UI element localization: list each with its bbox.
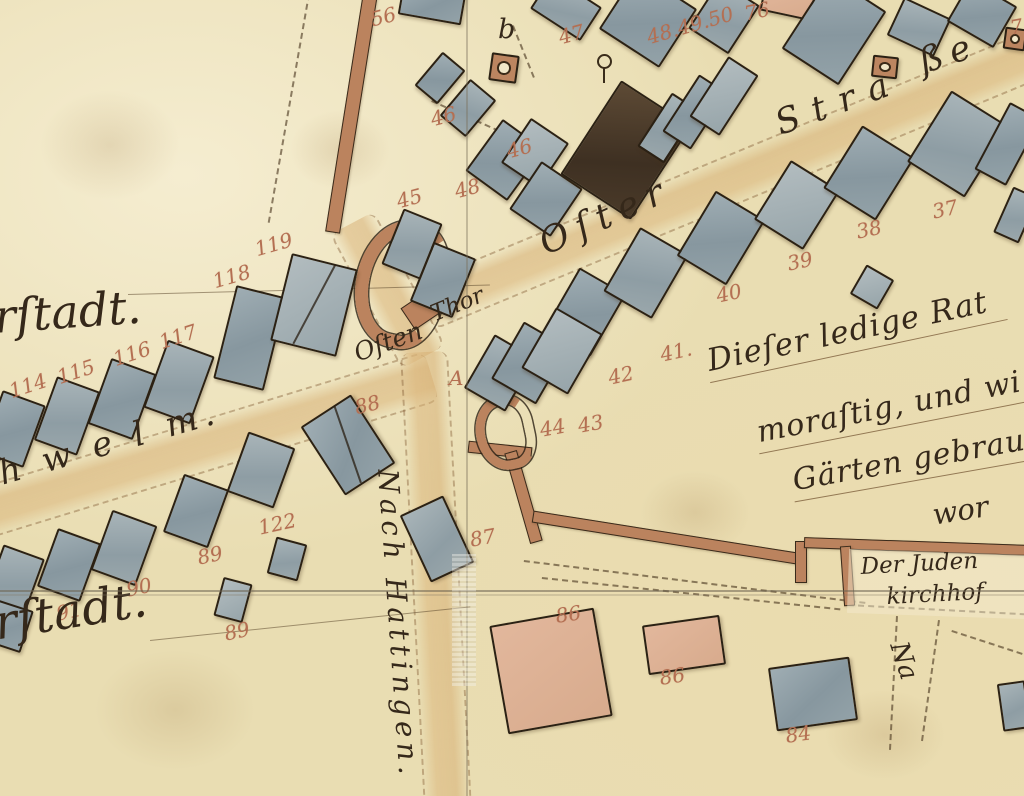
plot-number-40-12: 40 xyxy=(714,279,744,308)
plot-number-119-25: 119 xyxy=(252,227,295,261)
building-29 xyxy=(993,186,1024,243)
plot-number-41-13: 41. xyxy=(658,336,694,366)
building-well-b xyxy=(488,52,520,84)
building-89a xyxy=(163,474,229,549)
plot-number-89-27: 89 xyxy=(195,541,225,570)
paper-stain-2 xyxy=(95,650,255,770)
building-119 xyxy=(270,253,358,357)
plot-number-114-20: 114 xyxy=(6,368,50,403)
building-divider xyxy=(292,265,336,345)
plot-number-89-30: 89 xyxy=(222,617,252,646)
dashed-boundary-9 xyxy=(951,630,1024,658)
plot-number-86-31: 86 xyxy=(554,600,583,627)
plot-number-87-18: 87 xyxy=(468,524,497,552)
map-fold-horizontal xyxy=(0,590,1024,592)
plot-number-86-32: 86 xyxy=(658,662,687,689)
building-86b xyxy=(642,615,726,675)
plot-number-122-26: 122 xyxy=(256,508,298,539)
plot-number-38-10: 38 xyxy=(854,215,884,244)
plot-number-39-11: 39 xyxy=(785,247,815,276)
plot-number-44-15: 44 xyxy=(538,414,567,442)
road-label-partial-na: Na xyxy=(883,638,923,684)
building-84 xyxy=(768,657,858,732)
building-53 xyxy=(997,680,1024,731)
dashed-boundary-0 xyxy=(268,0,310,223)
plot-number-116-22: 116 xyxy=(110,336,154,371)
building-122 xyxy=(267,537,308,582)
plot-number-42-14: 42 xyxy=(606,361,636,390)
map-repair-patch xyxy=(452,554,476,686)
plot-number-84-33: 84 xyxy=(784,720,813,747)
paper-stain-0 xyxy=(40,90,180,200)
letter-b-well: b xyxy=(498,14,515,45)
plot-number-37-9: 37 xyxy=(930,195,960,224)
map-canvas: 56474646454848.49.507673738394041.424443… xyxy=(0,0,1024,796)
plot-number-A-19: A xyxy=(449,366,463,390)
plot-number-43-16: 43 xyxy=(576,410,605,438)
plot-number-115-21: 115 xyxy=(54,354,98,389)
building-56 xyxy=(398,0,467,25)
building-39 xyxy=(850,264,895,309)
vorstadt-label-top: rſtadt. xyxy=(0,280,143,344)
tree-symbol-0 xyxy=(596,54,610,84)
building-86a xyxy=(489,608,612,735)
plot-number-56-0: 56 xyxy=(368,2,399,31)
plot-number-76-7: 76 xyxy=(742,0,772,25)
juden-kirchhof-line2: kirchhof xyxy=(886,579,984,610)
plot-number-45-4: 45 xyxy=(394,183,425,213)
note-line-4: wor xyxy=(930,489,991,531)
